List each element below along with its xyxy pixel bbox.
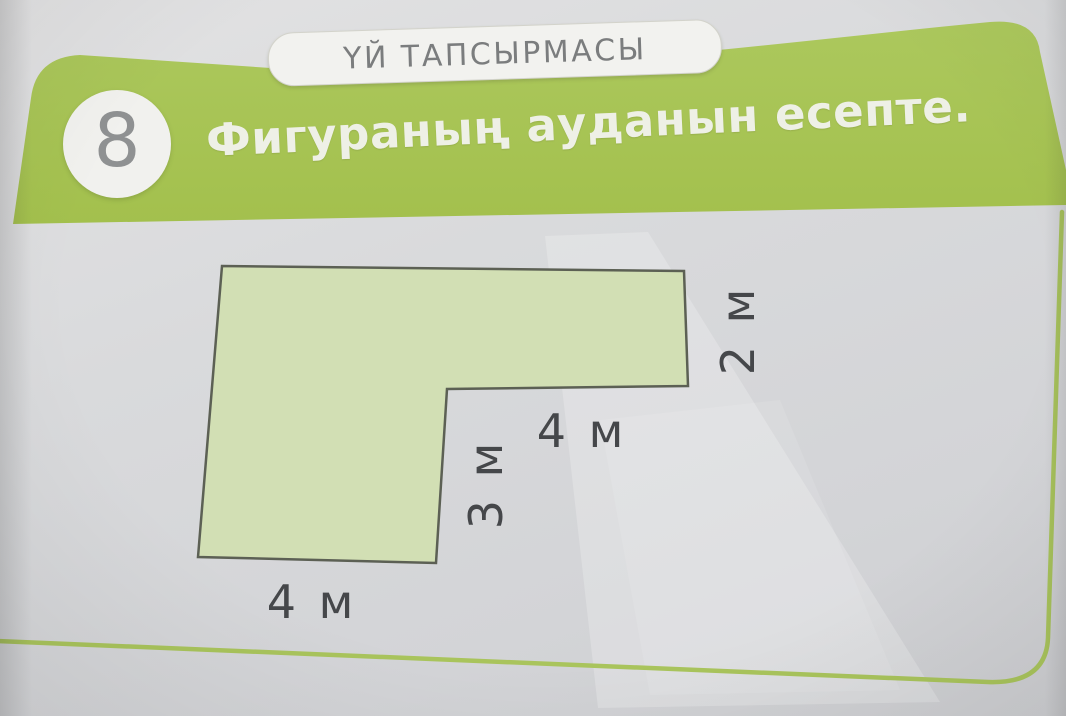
task-number: 8 bbox=[93, 104, 140, 184]
dimension-label-inner-vertical: 3 м bbox=[459, 439, 513, 530]
textbook-page-photo: ҮЙ ТАПСЫРМАСЫ 8 Фигураның ауданын есепте… bbox=[0, 0, 1066, 716]
paper-sheen-2 bbox=[600, 400, 900, 695]
dimension-label-bottom-side: 4 м bbox=[267, 575, 358, 629]
task-number-circle: 8 bbox=[63, 90, 171, 198]
homework-badge-label: ҮЙ ТАПСЫРМАСЫ bbox=[343, 30, 648, 77]
dimension-label-right-side: 2 м bbox=[711, 285, 765, 376]
dimension-label-inner-horizontal: 4 м bbox=[537, 404, 628, 458]
